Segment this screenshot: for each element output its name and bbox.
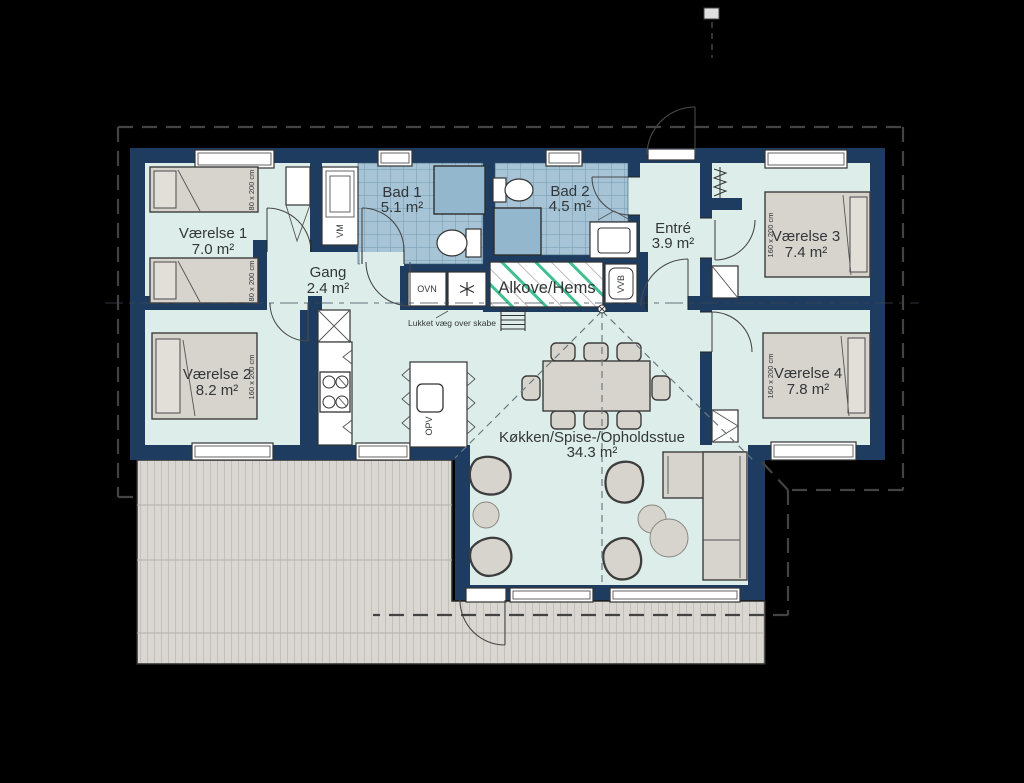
bed-single-2 bbox=[150, 258, 258, 303]
kitchen-island bbox=[402, 362, 475, 447]
toilet-bad1 bbox=[437, 229, 481, 257]
kitchen-counter bbox=[318, 342, 352, 445]
floorplan-drawing: Værelse 1 7.0 m² Værelse 2 8.2 m² Værels… bbox=[0, 0, 1024, 783]
alcove-label: Alkove/Hems bbox=[498, 279, 595, 297]
oven-label: OVN bbox=[417, 284, 437, 294]
window-living-2 bbox=[610, 588, 740, 602]
room-area-bad1: 5.1 m² bbox=[381, 199, 424, 216]
section-marker bbox=[704, 8, 719, 58]
closet-vaerelse4 bbox=[712, 410, 738, 442]
floorplan-canvas: Værelse 1 7.0 m² Værelse 2 8.2 m² Værels… bbox=[0, 0, 1024, 783]
room-name-vaerelse3: Værelse 3 bbox=[772, 228, 840, 245]
shower-bad1 bbox=[434, 166, 485, 214]
front-door bbox=[648, 149, 695, 160]
dining-table bbox=[543, 361, 650, 411]
room-area-entre: 3.9 m² bbox=[652, 235, 695, 252]
shower-bad2 bbox=[494, 208, 541, 255]
room-area-vaerelse1: 7.0 m² bbox=[192, 241, 235, 258]
room-name-vaerelse4: Værelse 4 bbox=[774, 365, 842, 382]
window-vaerelse3 bbox=[765, 150, 847, 168]
window-living-1 bbox=[510, 588, 593, 602]
bed-size-label: 80 x 200 cm bbox=[247, 261, 256, 302]
freezer-cabinet bbox=[448, 272, 486, 306]
bed-size-label: 80 x 200 cm bbox=[247, 170, 256, 211]
toilet-bad2 bbox=[493, 178, 533, 202]
window-bad2 bbox=[546, 150, 582, 166]
window-kitchen bbox=[356, 443, 410, 460]
closet-vaerelse3 bbox=[712, 266, 738, 298]
washing-machine-label: VM bbox=[335, 224, 345, 238]
stove bbox=[320, 372, 350, 412]
room-area-vaerelse2: 8.2 m² bbox=[196, 382, 239, 399]
room-name-vaerelse1: Værelse 1 bbox=[179, 225, 247, 242]
bed-single-1 bbox=[150, 167, 258, 212]
room-area-vaerelse4: 7.8 m² bbox=[787, 381, 830, 398]
window-bad1 bbox=[378, 150, 412, 166]
closed-wall-note: Lukket væg over skabe bbox=[408, 318, 496, 328]
window-vaerelse2 bbox=[192, 443, 273, 460]
window-vaerelse4 bbox=[771, 442, 856, 460]
room-area-bad2: 4.5 m² bbox=[549, 198, 592, 215]
terrace-door-panel bbox=[466, 588, 506, 602]
side-table bbox=[473, 502, 499, 528]
room-name-vaerelse2: Værelse 2 bbox=[183, 366, 251, 383]
bed-size-label: 160 x 200 cm bbox=[766, 212, 775, 257]
bed-size-label: 160 x 200 cm bbox=[766, 353, 775, 398]
bed-size-label: 160 x 200 cm bbox=[247, 354, 256, 399]
room-area-gang: 2.4 m² bbox=[307, 280, 350, 297]
room-area-vaerelse3: 7.4 m² bbox=[785, 244, 828, 261]
dishwasher-label: OPV bbox=[424, 416, 434, 435]
room-area-koekken: 34.3 m² bbox=[567, 444, 618, 461]
window-vaerelse1 bbox=[195, 150, 274, 168]
water-heater-label: VVB bbox=[616, 275, 626, 293]
side-table bbox=[650, 519, 688, 557]
room-name-gang: Gang bbox=[310, 264, 347, 281]
kitchen-tall-cabinet bbox=[318, 310, 350, 342]
